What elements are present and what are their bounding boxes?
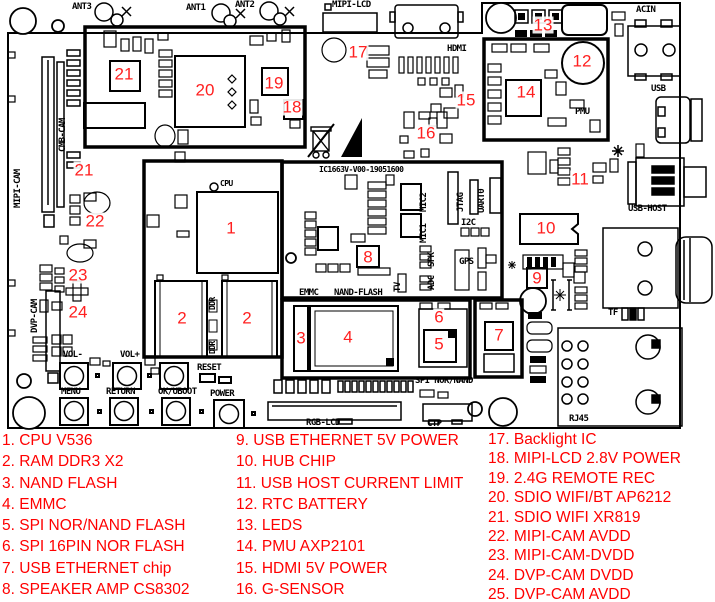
label-power: POWER xyxy=(210,390,234,399)
legend-item-13: 13. LEDS xyxy=(236,515,463,536)
marker-6: 6 xyxy=(433,309,444,326)
legend-item-22: 22. MIPI-CAM AVDD xyxy=(488,527,681,546)
label-rj45: RJ45 xyxy=(569,415,588,424)
legend-item-16: 16. G-SENSOR xyxy=(236,579,463,600)
label-reset: RESET xyxy=(197,364,221,373)
label-ddr-2: DDR xyxy=(209,341,217,354)
marker-2b: 2 xyxy=(241,310,252,327)
legend-column-3: 17. Backlight IC 18. MIPI-LCD 2.8V POWER… xyxy=(488,430,681,602)
legend-item-14: 14. PMU AXP2101 xyxy=(236,536,463,557)
marker-7: 7 xyxy=(493,327,504,344)
label-usb: USB xyxy=(651,85,665,94)
label-tv: TV xyxy=(394,282,403,292)
legend-item-2: 2. RAM DDR3 X2 xyxy=(2,451,190,472)
marker-18: 18 xyxy=(282,99,303,116)
weee-trash-icon xyxy=(308,124,334,158)
legend-item-21: 21. SDIO WIFI XR819 xyxy=(488,508,681,527)
leds xyxy=(515,5,607,37)
tf-card-slot xyxy=(603,228,678,320)
legend-item-24: 24. DVP-CAM DVDD xyxy=(488,566,681,585)
marker-21b: 21 xyxy=(74,162,95,179)
cpu-chip xyxy=(197,192,278,273)
label-cpu: CPU xyxy=(220,180,233,188)
legend-item-19: 19. 2.4G REMOTE REC xyxy=(488,469,681,488)
label-spk: SPK xyxy=(428,253,437,267)
ce-triangle-symbol xyxy=(341,118,362,157)
legend-item-18: 18. MIPI-LCD 2.8V POWER xyxy=(488,449,681,468)
marker-4: 4 xyxy=(342,329,353,346)
label-mipi-cam: MIPI-CAM xyxy=(14,169,23,208)
marker-12: 12 xyxy=(572,53,593,70)
mipi-lcd-connector xyxy=(323,13,377,32)
legend-item-12: 12. RTC BATTERY xyxy=(236,494,463,515)
pcb-board: ANT3 ANT1 ANT2 MIPI-LCD HDMI ACIN USB PM… xyxy=(0,0,715,432)
small-components xyxy=(8,12,644,398)
label-spi-nor-nand: SPI NOR/NAND xyxy=(415,377,473,386)
legend-item-11: 11. USB HOST CURRENT LIMIT xyxy=(236,473,463,494)
marker-19: 19 xyxy=(264,75,285,92)
label-ant3: ANT3 xyxy=(72,3,91,12)
label-mic2: MIC2 xyxy=(420,193,429,212)
label-hdmi: HDMI xyxy=(447,45,466,54)
legend-item-23: 23. MIPI-CAM-DVDD xyxy=(488,546,681,565)
marker-8: 8 xyxy=(362,249,373,266)
marker-15: 15 xyxy=(456,92,477,109)
marker-17: 17 xyxy=(348,44,369,61)
label-vol-minus: VOL- xyxy=(63,351,82,360)
marker-22: 22 xyxy=(85,213,106,230)
audio-jack xyxy=(676,237,712,303)
label-mipi-lcd: MIPI-LCD xyxy=(332,1,371,10)
label-pmu: PMU xyxy=(575,108,589,117)
label-return: RETURN xyxy=(106,388,135,397)
acin-connector xyxy=(628,20,680,80)
label-ddr-1: DDR xyxy=(209,297,217,310)
marker-13: 13 xyxy=(533,17,554,34)
legend-item-10: 10. HUB CHIP xyxy=(236,451,463,472)
label-silkscreen-id: IC1663V-V00-19051600 xyxy=(319,166,403,174)
usb-host-connector xyxy=(628,158,706,206)
label-cmb-cam: CMB-CAM xyxy=(59,118,68,152)
marker-20: 20 xyxy=(195,82,216,99)
label-adc: ADC xyxy=(428,276,437,290)
label-i2c: I2C xyxy=(461,219,475,228)
marker-10: 10 xyxy=(536,220,557,237)
label-menu: MENU xyxy=(61,388,80,397)
label-ant2: ANT2 xyxy=(235,1,254,10)
label-tf: TF xyxy=(608,309,618,318)
label-ok-uboot: OK/UBOOT xyxy=(158,388,197,397)
legend-item-8: 8. SPEAKER AMP CS8302 xyxy=(2,579,190,600)
label-acin: ACIN xyxy=(636,6,655,15)
marker-2a: 2 xyxy=(176,310,187,327)
rj45-connector xyxy=(558,328,682,426)
label-nand-flash: NAND-FLASH xyxy=(334,289,382,298)
marker-16: 16 xyxy=(416,125,437,142)
marker-5: 5 xyxy=(433,336,444,353)
label-usb-host: USB-HOST xyxy=(628,205,667,214)
label-uart0: UART0 xyxy=(478,189,487,213)
label-gps: GPS xyxy=(459,258,473,267)
legend-item-4: 4. EMMC xyxy=(2,494,190,515)
marker-14: 14 xyxy=(516,84,537,101)
label-ant1: ANT1 xyxy=(186,4,205,13)
marker-11: 11 xyxy=(570,171,590,188)
marker-21a: 21 xyxy=(114,66,135,83)
legend-item-7: 7. USB ETHERNET chip xyxy=(2,558,190,579)
pcb-artwork xyxy=(0,0,715,432)
marker-9: 9 xyxy=(531,270,542,287)
cmb-cam-connector xyxy=(67,50,80,168)
marker-3: 3 xyxy=(295,330,306,347)
label-emmc: EMMC xyxy=(299,289,318,298)
emmc-chip xyxy=(310,306,398,371)
marker-24: 24 xyxy=(68,304,89,321)
legend-item-3: 3. NAND FLASH xyxy=(2,473,190,494)
pcb-diagram-screen: ANT3 ANT1 ANT2 MIPI-LCD HDMI ACIN USB PM… xyxy=(0,0,715,602)
legend-column-1: 1. CPU V536 2. RAM DDR3 X2 3. NAND FLASH… xyxy=(2,430,190,600)
label-jtag: JTAG xyxy=(457,193,466,212)
legend-item-20: 20. SDIO WIFI/BT AP6212 xyxy=(488,488,681,507)
label-rgb-lcd: RGB-LCD xyxy=(306,419,340,428)
legend-item-17: 17. Backlight IC xyxy=(488,430,681,449)
legend-item-25: 25. DVP-CAM AVDD xyxy=(488,585,681,602)
label-vol-plus: VOL+ xyxy=(120,351,139,360)
legend-item-6: 6. SPI 16PIN NOR FLASH xyxy=(2,536,190,557)
legend-item-9: 9. USB ETHERNET 5V POWER xyxy=(236,430,463,451)
label-mic1: MIC1 xyxy=(420,224,429,243)
pin-header-row xyxy=(274,380,413,393)
legend-item-1: 1. CPU V536 xyxy=(2,430,190,451)
legend-item-5: 5. SPI NOR/NAND FLASH xyxy=(2,515,190,536)
legend-column-2: 9. USB ETHERNET 5V POWER 10. HUB CHIP 11… xyxy=(236,430,463,600)
legend-item-15: 15. HDMI 5V POWER xyxy=(236,558,463,579)
label-dvp-cam: DVP-CAM xyxy=(31,299,40,333)
marker-23: 23 xyxy=(68,267,89,284)
label-ctp: CTP xyxy=(427,420,441,429)
marker-1: 1 xyxy=(225,220,236,237)
